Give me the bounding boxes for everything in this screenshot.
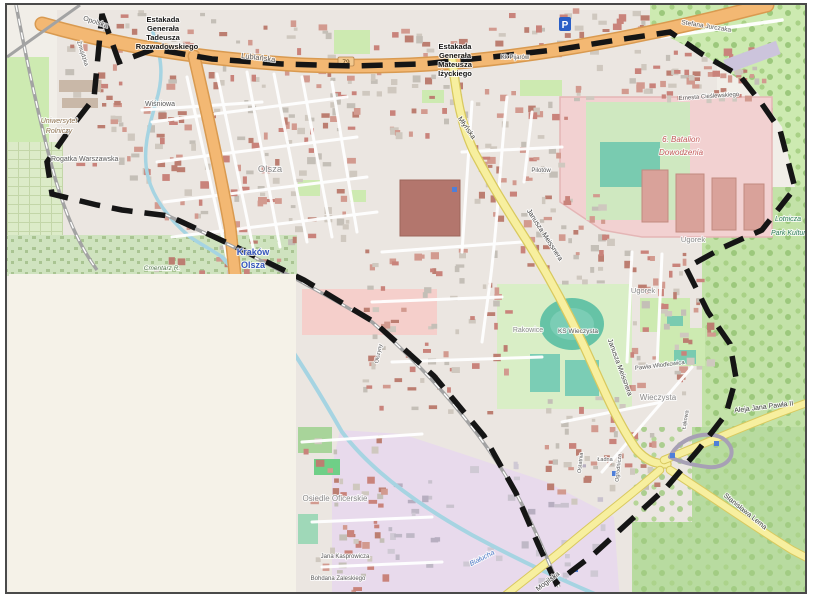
map-label-batalion-1: 6. Batalion (662, 135, 700, 144)
map-label-zaleskiego: Bohdana Zaleskiego (311, 576, 366, 582)
map-frame[interactable]: P 79 OpolskaŻmujdzkaEstakadaGenerałaTade… (5, 3, 807, 594)
map-label-ugorek-1: Ugorek (681, 235, 705, 244)
map-label-rakowice: Rakowice (513, 327, 543, 334)
map-label-estakada-w-1: Estakada (147, 15, 181, 24)
map-label-wieczysta-district: Wieczysta (640, 393, 677, 402)
map-canvas[interactable]: P 79 OpolskaŻmujdzkaEstakadaGenerałaTade… (7, 5, 807, 594)
map-view: P 79 OpolskaŻmujdzkaEstakadaGenerałaTade… (0, 0, 813, 606)
map-label-estakada-e-1: Estakada (439, 42, 473, 51)
map-label-oficerskie: Osiedle Oficerskie (303, 494, 368, 503)
map-label-wisniowa: Wiśniowa (145, 101, 175, 108)
map-label-park-kult-1: Lotnicza (775, 216, 801, 223)
map-label-estakada-e-3: Mateusza (438, 60, 473, 69)
map-label-ks-wieczysta: KS Wieczysta (558, 328, 598, 335)
map-label-cmentarz: Cmentarz R. (144, 265, 181, 272)
map-label-uniwersytet-1: Uniwersytet (41, 118, 79, 125)
map-label-ladna: Ładna (597, 457, 613, 463)
map-label-pilotow: Pilotów (531, 168, 551, 174)
map-label-park-kult-2: Park Kulturowy (771, 230, 807, 237)
map-label-pijarow: Kk Pijarów (501, 55, 530, 61)
map-label-estakada-w-3: Tadeusza (146, 33, 180, 42)
svg-text:P: P (562, 20, 569, 31)
map-label-estakada-w-2: Generała (147, 24, 180, 33)
map-label-ugorek-2: Ugorek (631, 286, 655, 295)
map-label-olsza-district: Olsza (258, 164, 283, 175)
map-label-krakow-olsza-2: Olsza (241, 260, 266, 270)
map-label-batalion-2: Dowodzenia (659, 148, 704, 157)
map-label-estakada-w-4: Rozwadowskiego (136, 42, 199, 51)
map-label-kasprowicza: Jana Kasprowicza (321, 554, 370, 560)
map-label-estakada-e-4: Iżyckiego (438, 69, 472, 78)
map-label-uniwersytet-2: Rolniczy (46, 128, 73, 135)
map-label-estakada-e-2: Generała (439, 51, 472, 60)
map-label-rogatka: Rogatka Warszawska (51, 156, 119, 163)
blank-overlay (9, 274, 296, 594)
map-label-krakow-olsza-1: Kraków (237, 247, 271, 257)
